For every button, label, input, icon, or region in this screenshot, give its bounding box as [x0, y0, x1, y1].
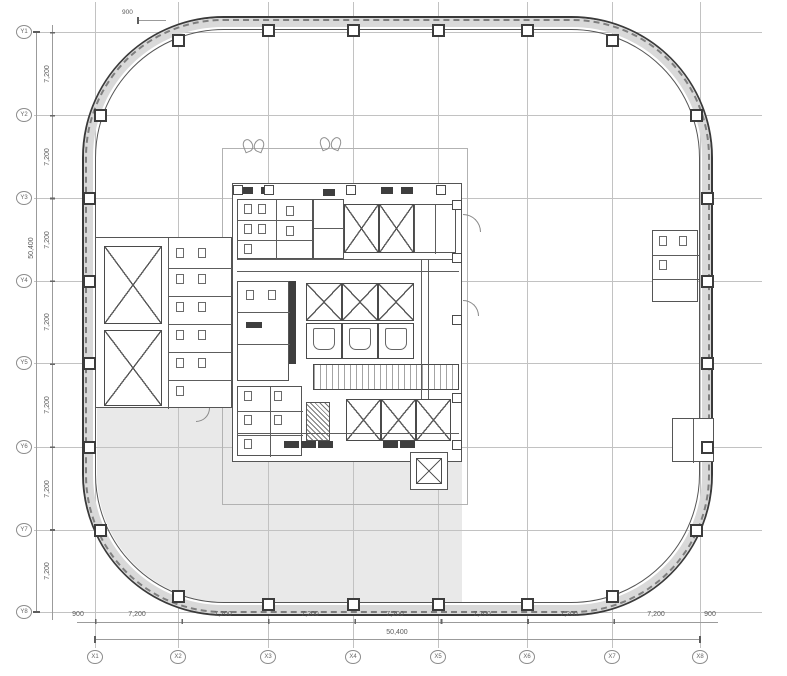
door-leaf — [400, 441, 415, 448]
fixture — [679, 236, 687, 246]
vestibule-stair — [416, 458, 442, 484]
bottom-dimension-ticks — [95, 619, 700, 624]
elevator-car — [378, 323, 414, 359]
fixture — [176, 386, 184, 396]
dim-total-label: 50,400 — [28, 228, 36, 268]
column-marker — [262, 24, 275, 37]
fixture — [246, 290, 254, 300]
dim-label: 7,200 — [380, 611, 410, 619]
column-marker — [347, 598, 360, 611]
elevator-shaft — [379, 204, 414, 253]
column-marker — [701, 192, 714, 205]
dim-end-tick — [94, 636, 96, 643]
fixture — [176, 274, 184, 284]
core-column — [452, 253, 462, 263]
left-service-annex — [95, 237, 232, 408]
partition — [276, 200, 277, 260]
dim-label: 7,200 — [467, 611, 497, 619]
grid-bubble-y6: Y6 — [16, 440, 32, 454]
fixture — [244, 224, 252, 234]
dim-end-tick — [33, 31, 40, 33]
grid-bubble-x1: X1 — [87, 650, 103, 664]
grid-bubble-y3: Y3 — [16, 191, 32, 205]
elevator-shaft — [381, 399, 416, 441]
dim-label: 7,200 — [44, 307, 52, 337]
dim-end-tick — [699, 636, 701, 643]
elevator-shaft — [344, 204, 379, 253]
column-marker — [83, 441, 96, 454]
grid-bubble-x6: X6 — [519, 650, 535, 664]
east-wall-service-box — [672, 418, 714, 462]
dim-label: 7,200 — [44, 556, 52, 586]
fixture — [659, 260, 667, 270]
partition — [238, 220, 314, 221]
corridor-wall — [428, 259, 429, 399]
partition — [693, 419, 694, 463]
fixture — [286, 226, 294, 236]
column-marker — [521, 598, 534, 611]
fixture — [176, 330, 184, 340]
grid-bubble-x8: X8 — [692, 650, 708, 664]
core-column — [233, 185, 243, 195]
corridor-wall — [237, 271, 459, 272]
fixture — [198, 302, 206, 312]
door-leaf — [383, 441, 398, 448]
equipment — [323, 189, 335, 196]
dim-label: 7,200 — [208, 611, 238, 619]
dim-label: 7,200 — [44, 59, 52, 89]
column-marker — [690, 524, 703, 537]
equipment — [381, 187, 393, 194]
column-marker — [690, 109, 703, 122]
fixture — [286, 206, 294, 216]
partition — [314, 228, 345, 229]
service-room — [313, 199, 344, 259]
dim-label: 7,200 — [554, 611, 584, 619]
duct-strip — [313, 364, 459, 390]
partition — [238, 344, 290, 345]
fixture — [244, 415, 252, 425]
vent-shaft — [306, 402, 330, 441]
shaft-wall — [289, 281, 296, 364]
elevator-shaft — [416, 399, 451, 441]
service-room-west — [237, 281, 289, 381]
partition — [435, 205, 436, 254]
fixture — [274, 391, 282, 401]
dim-end-tick — [137, 17, 139, 24]
grid-bubble-x5: X5 — [430, 650, 446, 664]
column-marker — [347, 24, 360, 37]
grid-bubble-y2: Y2 — [16, 108, 32, 122]
fixture — [176, 302, 184, 312]
core-column — [452, 393, 462, 403]
elevator-shaft — [378, 283, 414, 321]
column-marker — [94, 524, 107, 537]
dim-label: 7,200 — [44, 225, 52, 255]
lobby-wall — [237, 433, 459, 434]
dim-edge-label: 900 — [700, 611, 720, 619]
column-marker — [701, 357, 714, 370]
annex-partition — [168, 268, 233, 269]
grid-bubble-x2: X2 — [170, 650, 186, 664]
grid-bubble-y5: Y5 — [16, 356, 32, 370]
machine-room — [414, 204, 456, 253]
partition — [238, 312, 290, 313]
column-marker — [701, 275, 714, 288]
dim-label: 7,200 — [44, 142, 52, 172]
partition — [653, 255, 699, 256]
equipment — [401, 187, 413, 194]
floor-plan-canvas: 7,200 7,200 7,200 7,200 7,200 7,200 7,20… — [0, 0, 787, 676]
fixture — [244, 391, 252, 401]
fixture — [274, 415, 282, 425]
fixture — [244, 244, 252, 254]
fixture — [176, 248, 184, 258]
annex-partition — [168, 296, 233, 297]
elevator-shaft — [346, 399, 381, 441]
stair-shaft-2 — [104, 330, 162, 406]
core-column — [452, 200, 462, 210]
corridor-wall — [421, 259, 422, 399]
partition — [238, 240, 314, 241]
column-marker — [606, 34, 619, 47]
annex-partition — [168, 380, 233, 381]
grid-bubble-x7: X7 — [604, 650, 620, 664]
core-column — [346, 185, 356, 195]
column-marker — [172, 590, 185, 603]
annex-partition — [168, 352, 233, 353]
dim-note: 900 — [122, 9, 133, 16]
fixture — [244, 204, 252, 214]
column-marker — [606, 590, 619, 603]
door-leaf — [284, 441, 299, 448]
dim-label: 7,200 — [641, 611, 671, 619]
core-column — [452, 440, 462, 450]
column-marker — [701, 441, 714, 454]
stair-shaft-1 — [104, 246, 162, 324]
column-marker — [83, 192, 96, 205]
central-core — [232, 183, 462, 462]
column-marker — [432, 24, 445, 37]
core-column — [264, 185, 274, 195]
grid-bubble-y4: Y4 — [16, 274, 32, 288]
grid-bubble-y7: Y7 — [16, 523, 32, 537]
fixture — [198, 274, 206, 284]
column-marker — [83, 357, 96, 370]
partition — [238, 411, 303, 412]
east-wall-room — [652, 230, 698, 302]
grid-bubble-y1: Y1 — [16, 25, 32, 39]
fixture — [258, 224, 266, 234]
fixture — [198, 358, 206, 368]
dim-edge-label: 900 — [68, 611, 88, 619]
grid-bubble-x4: X4 — [345, 650, 361, 664]
door-leaf — [318, 441, 333, 448]
grid-bubble-y8: Y8 — [16, 605, 32, 619]
partition — [653, 279, 699, 280]
dim-label: 7,200 — [295, 611, 325, 619]
partition — [270, 387, 271, 457]
toilet-block-north — [237, 199, 313, 259]
dim-label: 7,200 — [122, 611, 152, 619]
dim-end-tick — [33, 611, 40, 613]
grid-bubble-x3: X3 — [260, 650, 276, 664]
dim-label: 7,200 — [44, 474, 52, 504]
equipment — [246, 322, 262, 328]
elevator-shaft — [306, 283, 342, 321]
fixture — [198, 248, 206, 258]
core-column — [452, 315, 462, 325]
left-total-dimension-line — [36, 32, 37, 612]
core-column — [436, 185, 446, 195]
elevator-car — [342, 323, 378, 359]
annex-partition — [168, 324, 233, 325]
column-marker — [262, 598, 275, 611]
bottom-total-dimension-line — [95, 639, 700, 640]
column-marker — [432, 598, 445, 611]
corridor-wall — [237, 259, 459, 260]
fixture — [258, 204, 266, 214]
partition — [238, 435, 303, 436]
fixture — [244, 439, 252, 449]
dim-label: 7,200 — [44, 390, 52, 420]
fixture — [268, 290, 276, 300]
column-marker — [172, 34, 185, 47]
fixture — [198, 330, 206, 340]
column-marker — [521, 24, 534, 37]
dim-total-label: 50,400 — [377, 629, 417, 637]
elevator-shaft — [342, 283, 378, 321]
elevator-car — [306, 323, 342, 359]
fixture — [659, 236, 667, 246]
column-marker — [83, 275, 96, 288]
door-leaf — [301, 441, 316, 448]
note-leader-line — [138, 20, 166, 21]
fixture — [176, 358, 184, 368]
column-marker — [94, 109, 107, 122]
